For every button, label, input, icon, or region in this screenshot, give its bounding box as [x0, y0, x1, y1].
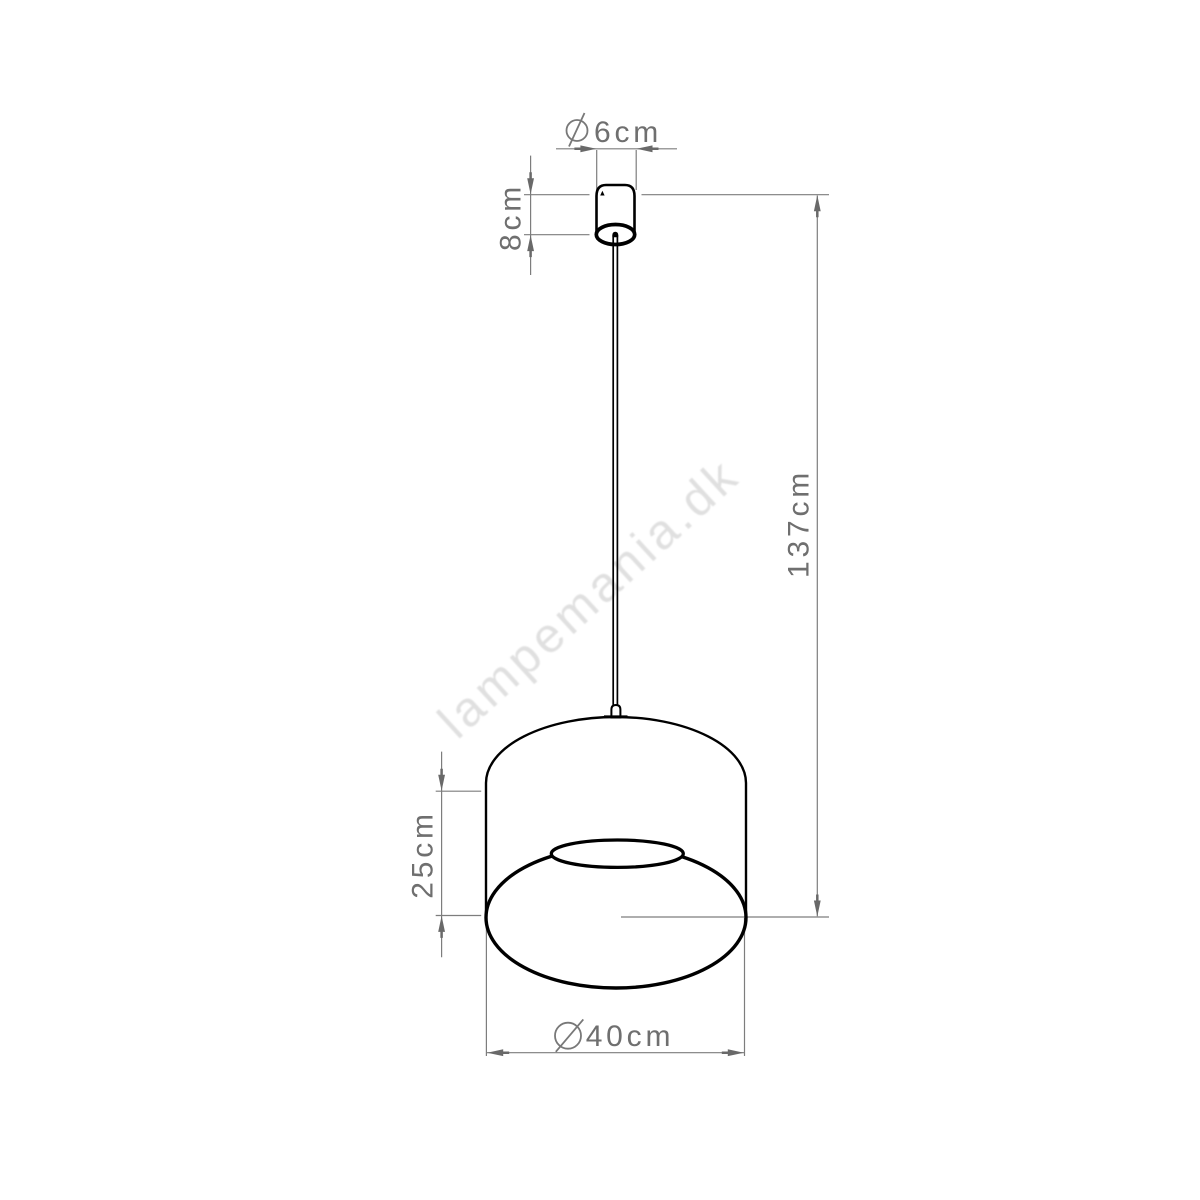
svg-text:25cm: 25cm	[407, 810, 440, 899]
svg-text:137cm: 137cm	[783, 469, 816, 578]
svg-text:40cm: 40cm	[586, 1020, 675, 1053]
svg-text:8cm: 8cm	[495, 183, 528, 251]
svg-text:6cm: 6cm	[594, 116, 662, 149]
